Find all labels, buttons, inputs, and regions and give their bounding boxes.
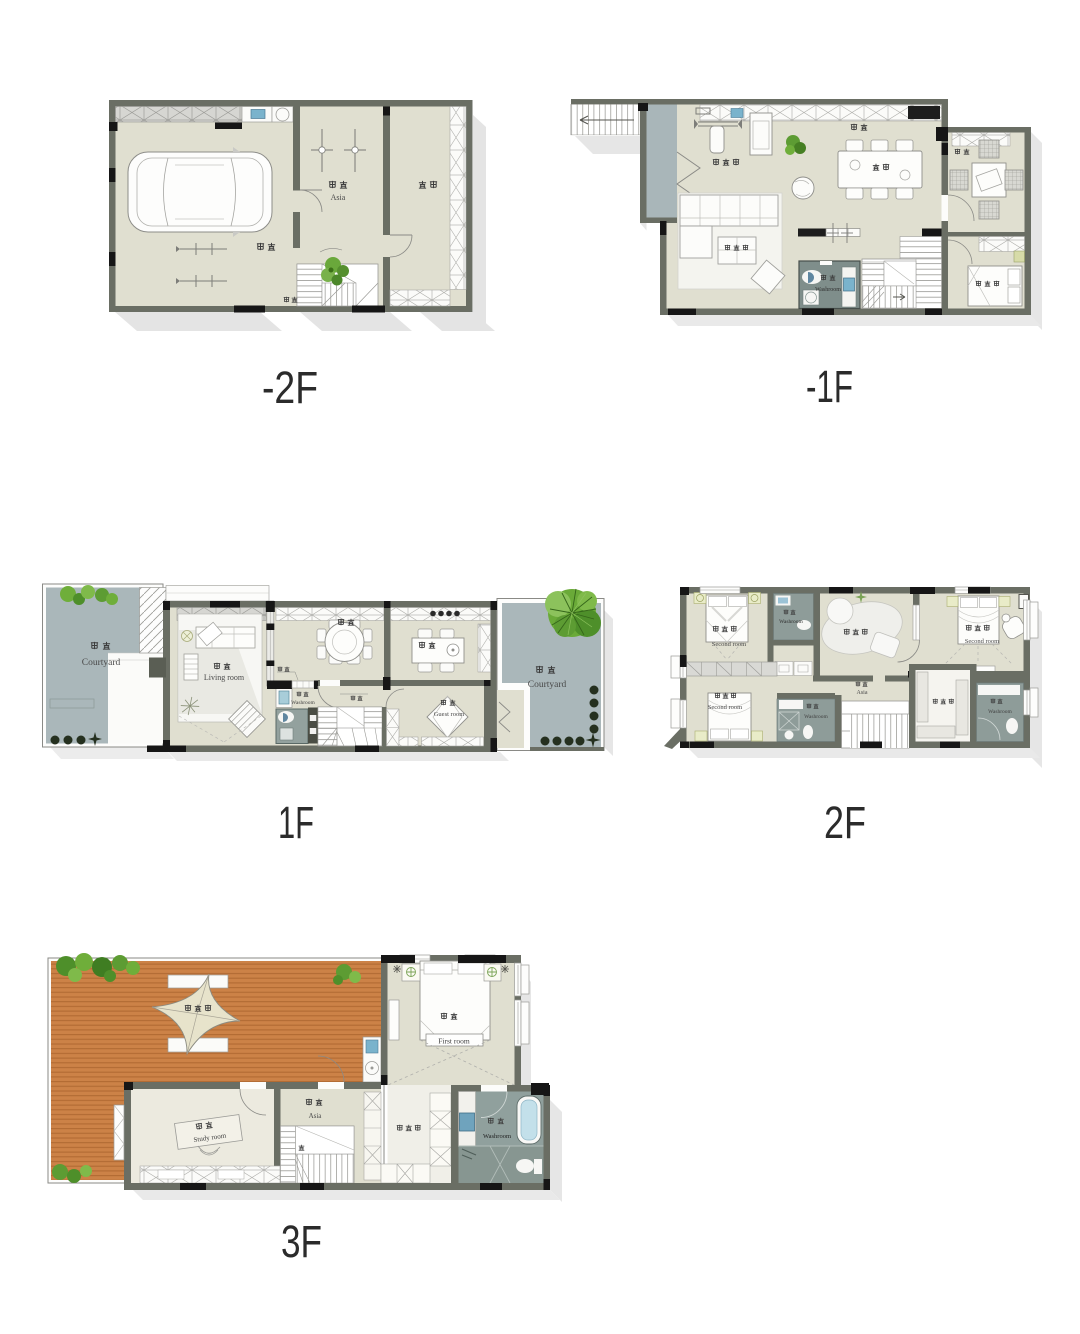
svg-text:Washroom: Washroom: [815, 287, 841, 293]
svg-text:Asia: Asia: [857, 690, 868, 696]
svg-text:-1F: -1F: [806, 361, 853, 412]
svg-text:Washroom: Washroom: [779, 619, 803, 625]
svg-text:Asia: Asia: [331, 193, 346, 202]
svg-text:First room: First room: [438, 1037, 470, 1046]
svg-text:Washroom: Washroom: [483, 1133, 511, 1140]
svg-text:Second room: Second room: [712, 641, 746, 648]
svg-text:Second room: Second room: [708, 704, 742, 711]
svg-text:2F: 2F: [824, 797, 866, 848]
svg-text:Washroom: Washroom: [291, 700, 315, 706]
svg-text:Asia: Asia: [309, 1112, 323, 1120]
svg-text:Washroom: Washroom: [804, 714, 828, 720]
svg-text:Washroom: Washroom: [988, 709, 1012, 715]
svg-text:Living room: Living room: [204, 673, 245, 682]
svg-text:Guest room: Guest room: [434, 711, 465, 718]
svg-text:Courtyard: Courtyard: [528, 680, 567, 690]
svg-text:Courtyard: Courtyard: [82, 658, 121, 668]
svg-text:3F: 3F: [281, 1216, 322, 1267]
svg-text:Second room: Second room: [965, 638, 999, 645]
svg-text:-2F: -2F: [262, 362, 318, 413]
svg-text:1F: 1F: [278, 797, 314, 848]
